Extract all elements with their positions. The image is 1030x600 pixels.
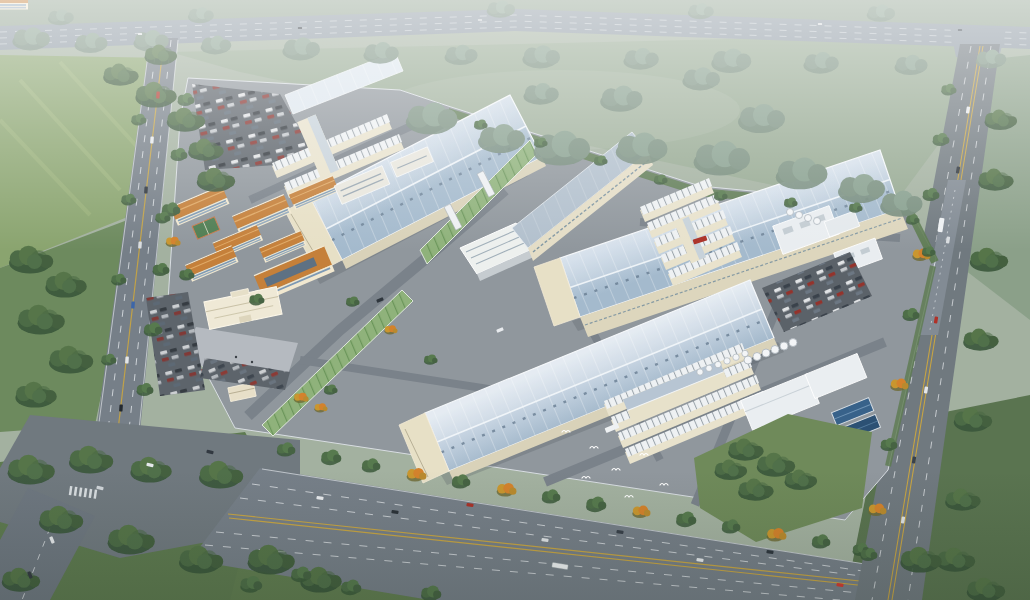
aerial-rendering-industrial-park — [0, 0, 1030, 600]
